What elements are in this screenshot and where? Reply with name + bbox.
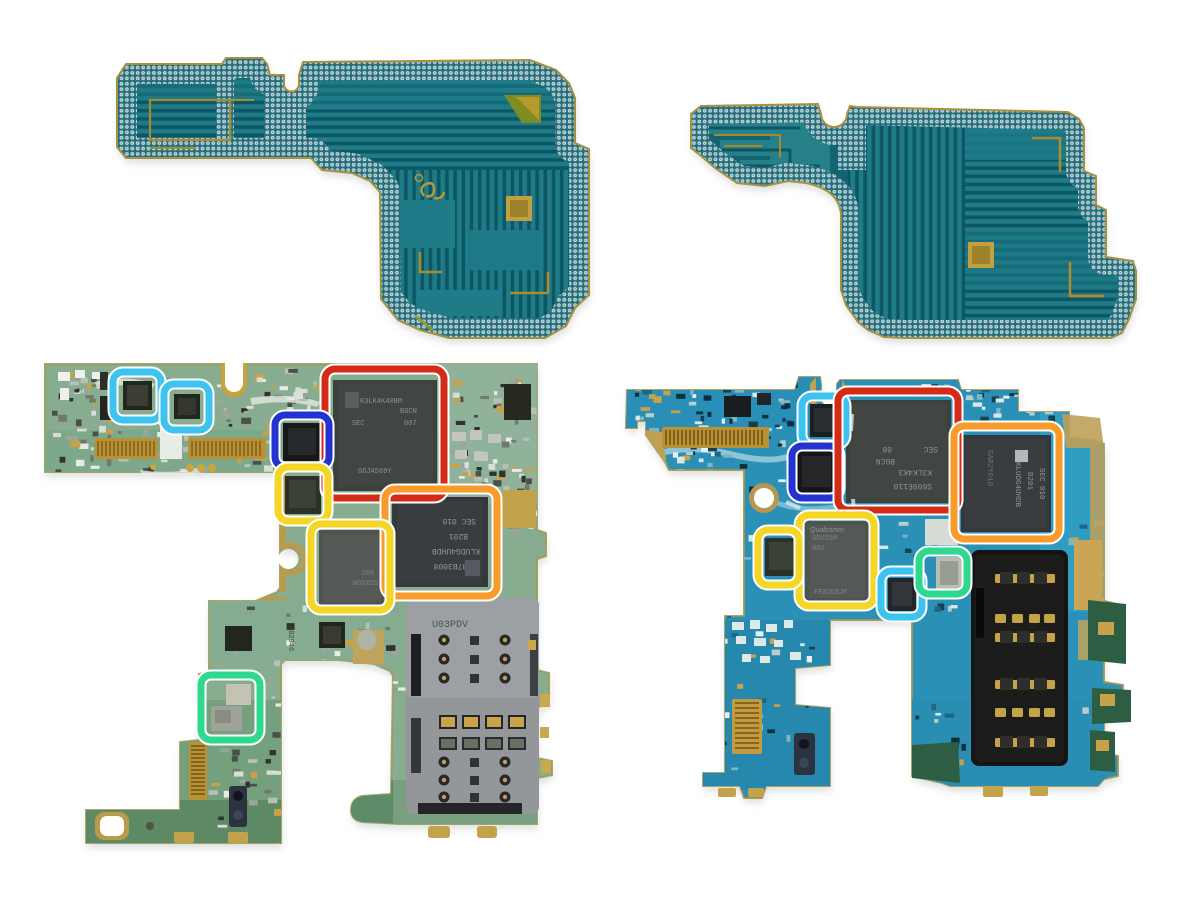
- svg-text:002: 002: [812, 545, 825, 553]
- svg-text:B201: B201: [1025, 472, 1033, 491]
- svg-text:B201: B201: [449, 531, 468, 540]
- svg-text:S609E110: S609E110: [893, 481, 932, 490]
- svg-text:SAR2Y010: SAR2Y010: [985, 450, 993, 487]
- svg-text:SEC: SEC: [923, 444, 938, 453]
- svg-text:08: 08: [882, 444, 892, 453]
- svg-text:002: 002: [361, 567, 374, 575]
- svg-text:GGJA569Y: GGJA569Y: [358, 468, 392, 476]
- svg-text:BGCN: BGCN: [876, 456, 895, 465]
- svg-text:SEC 010: SEC 010: [1037, 468, 1045, 500]
- svg-text:SEC: SEC: [352, 420, 365, 428]
- svg-text:SEC 010: SEC 010: [442, 516, 476, 525]
- svg-text:Qualcomm: Qualcomm: [810, 527, 844, 534]
- svg-text:182946: 182946: [286, 626, 294, 651]
- svg-text:007: 007: [404, 420, 417, 428]
- svg-text:KLUDG4UHDB: KLUDG4UHDB: [1013, 462, 1021, 508]
- svg-text:K3LK4K3: K3LK4K3: [898, 467, 932, 476]
- svg-text:K3LK4K40BM: K3LK4K40BM: [360, 398, 402, 406]
- svg-text:KLUDG4UHDB: KLUDG4UHDB: [432, 546, 480, 555]
- svg-text:BGCN: BGCN: [400, 408, 417, 416]
- svg-text:FE02GSJF: FE02GSJF: [814, 589, 848, 597]
- svg-text:U03PDV: U03PDV: [432, 620, 468, 631]
- svg-text:SDX55M: SDX55M: [812, 535, 837, 543]
- svg-text:SDX55M: SDX55M: [353, 577, 378, 585]
